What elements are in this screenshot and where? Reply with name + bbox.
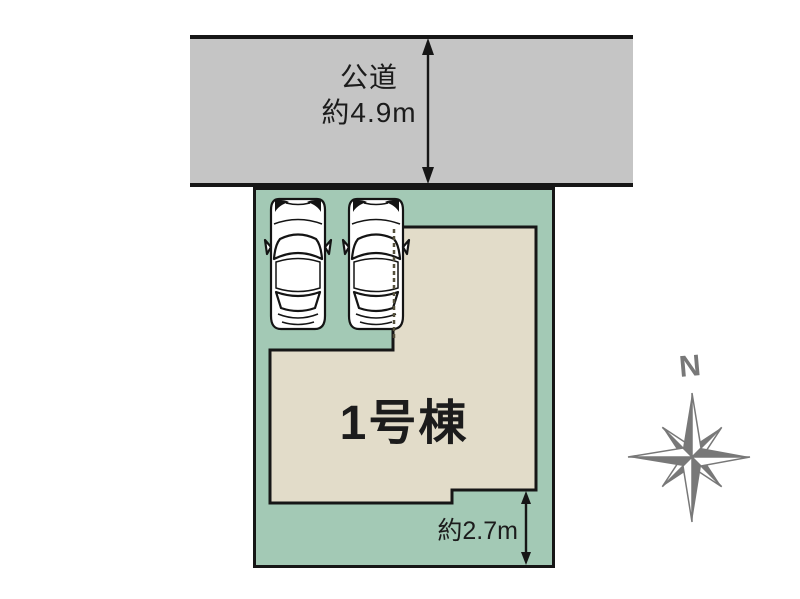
compass-rose-icon xyxy=(628,393,750,522)
plot-area xyxy=(253,187,555,568)
building-label: 1号棟 xyxy=(273,398,535,450)
setback-label: 約2.7m xyxy=(393,517,518,545)
road-label: 公道 約4.9m xyxy=(278,60,460,130)
road-width-label: 約4.9m xyxy=(278,95,460,130)
compass-north-label: N xyxy=(667,348,714,386)
site-plan: 公道 約4.9m 1号棟 約2.7m N xyxy=(0,0,800,599)
road-name-label: 公道 xyxy=(278,60,460,95)
